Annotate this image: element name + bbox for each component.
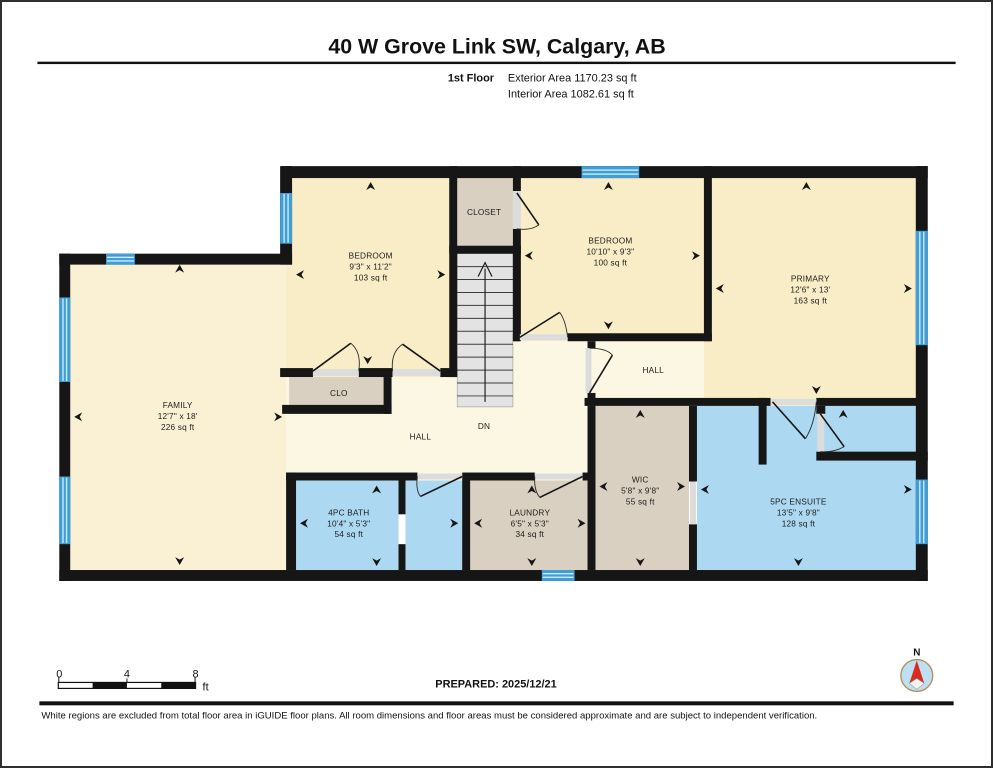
- room-ensuite-fill: [697, 406, 916, 570]
- scale-bar: 0 4 8 ft: [56, 668, 208, 693]
- room-label-ensuite-area: 128 sq ft: [782, 519, 816, 528]
- floor-plan: FAMILY 12'7" x 18' 226 sq ft BEDROOM 9'3…: [59, 166, 927, 581]
- room-label-bedroom2-dims: 10'10" x 9'3": [586, 248, 634, 257]
- room-label-hall-center: HALL: [410, 433, 432, 442]
- scale-unit-label: ft: [203, 681, 209, 693]
- room-label-family-name: FAMILY: [163, 401, 193, 410]
- stairs-dn-label: DN: [478, 422, 490, 431]
- room-label-wic-name: WIC: [632, 475, 649, 484]
- room-label-ensuite-dims: 13'5" x 9'8": [777, 508, 820, 517]
- room-label-laundry-name: LAUNDRY: [509, 508, 550, 517]
- floor-label: 1st Floor: [448, 73, 495, 85]
- window: [916, 480, 928, 545]
- room-label-laundry-dims: 6'5" x 5'3": [511, 519, 549, 528]
- window: [280, 193, 292, 244]
- window: [542, 570, 575, 581]
- window: [916, 231, 928, 345]
- room-label-bath-name: 4PC BATH: [328, 508, 369, 517]
- room-label-clo: CLO: [330, 389, 348, 398]
- scale-bar-segment: [161, 682, 195, 688]
- window: [59, 297, 70, 382]
- window: [59, 477, 70, 545]
- room-label-wic-dims: 5'8" x 9'8": [621, 486, 659, 495]
- footer-divider: [39, 701, 953, 705]
- room-label-ensuite-name: 5PC ENSUITE: [770, 497, 827, 506]
- floorplan-page: 40 W Grove Link SW, Calgary, AB 1st Floo…: [0, 0, 993, 768]
- footer: 0 4 8 ft PREPARED: 2025/12/21 N White re…: [39, 648, 953, 722]
- room-label-closet: CLOSET: [467, 208, 501, 217]
- header: 40 W Grove Link SW, Calgary, AB 1st Floo…: [37, 35, 955, 101]
- room-label-wic-area: 55 sq ft: [626, 497, 655, 506]
- window: [106, 254, 135, 265]
- interior-area-label: Interior Area 1082.61 sq ft: [508, 88, 634, 100]
- room-label-bath-area: 54 sq ft: [334, 530, 363, 539]
- scale-tick-8: 8: [193, 668, 199, 680]
- room-label-bedroom1-area: 103 sq ft: [354, 274, 388, 283]
- window: [582, 166, 640, 178]
- compass-icon: N: [901, 648, 933, 692]
- room-label-primary-name: PRIMARY: [791, 275, 830, 284]
- scale-bar-segment: [93, 682, 127, 688]
- compass-north-label: N: [913, 648, 920, 659]
- room-label-laundry-area: 34 sq ft: [515, 530, 544, 539]
- page-title: 40 W Grove Link SW, Calgary, AB: [328, 35, 665, 59]
- title-divider: [37, 62, 955, 64]
- prepared-date-label: PREPARED: 2025/12/21: [435, 678, 556, 690]
- room-label-primary-area: 163 sq ft: [794, 296, 828, 305]
- room-label-bedroom2-area: 100 sq ft: [594, 259, 628, 268]
- room-label-family-area: 226 sq ft: [161, 423, 195, 432]
- disclaimer-text: White regions are excluded from total fl…: [41, 710, 817, 721]
- room-label-bedroom2-name: BEDROOM: [588, 237, 632, 246]
- room-label-bath-dims: 10'4" x 5'3": [327, 519, 370, 528]
- room-label-hall-right: HALL: [642, 366, 664, 375]
- room-label-bedroom1-name: BEDROOM: [349, 252, 393, 261]
- room-label-family-dims: 12'7" x 18': [158, 412, 198, 421]
- stairs: [457, 254, 513, 407]
- room-label-bedroom1-dims: 9'3" x 11'2": [349, 263, 391, 272]
- room-label-primary-dims: 12'6" x 13': [790, 285, 830, 294]
- exterior-area-label: Exterior Area 1170.23 sq ft: [508, 73, 637, 85]
